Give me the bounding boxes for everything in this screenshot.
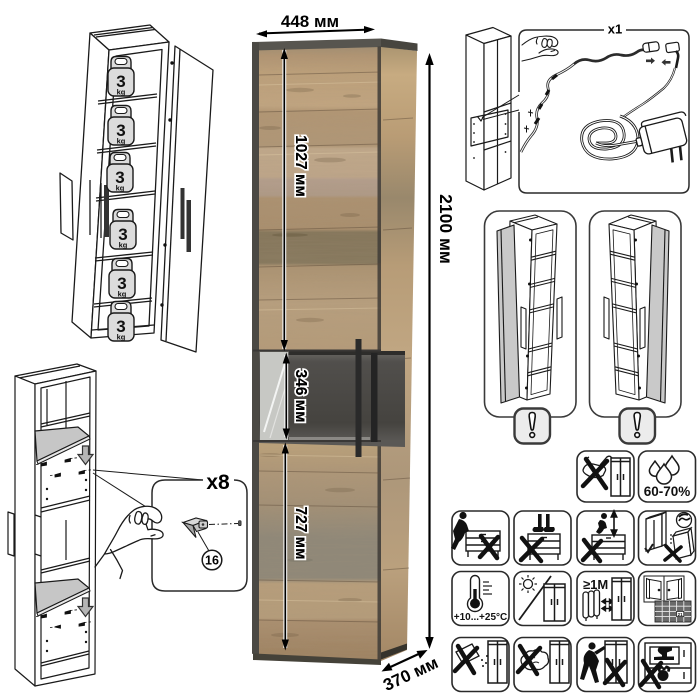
svg-text:346 мм: 346 мм xyxy=(292,369,309,422)
svg-text:448 мм: 448 мм xyxy=(281,12,339,31)
svg-text:+10...+25°C: +10...+25°C xyxy=(454,612,507,623)
svg-text:21: 21 xyxy=(678,612,684,617)
svg-text:x1: x1 xyxy=(608,22,622,37)
svg-text:727 мм: 727 мм xyxy=(292,506,309,559)
svg-text:16: 16 xyxy=(205,554,219,568)
svg-text:x8: x8 xyxy=(206,471,230,494)
svg-text:2100 мм: 2100 мм xyxy=(436,194,456,264)
svg-text:60-70%: 60-70% xyxy=(644,484,691,499)
svg-text:1027 мм: 1027 мм xyxy=(292,135,309,197)
